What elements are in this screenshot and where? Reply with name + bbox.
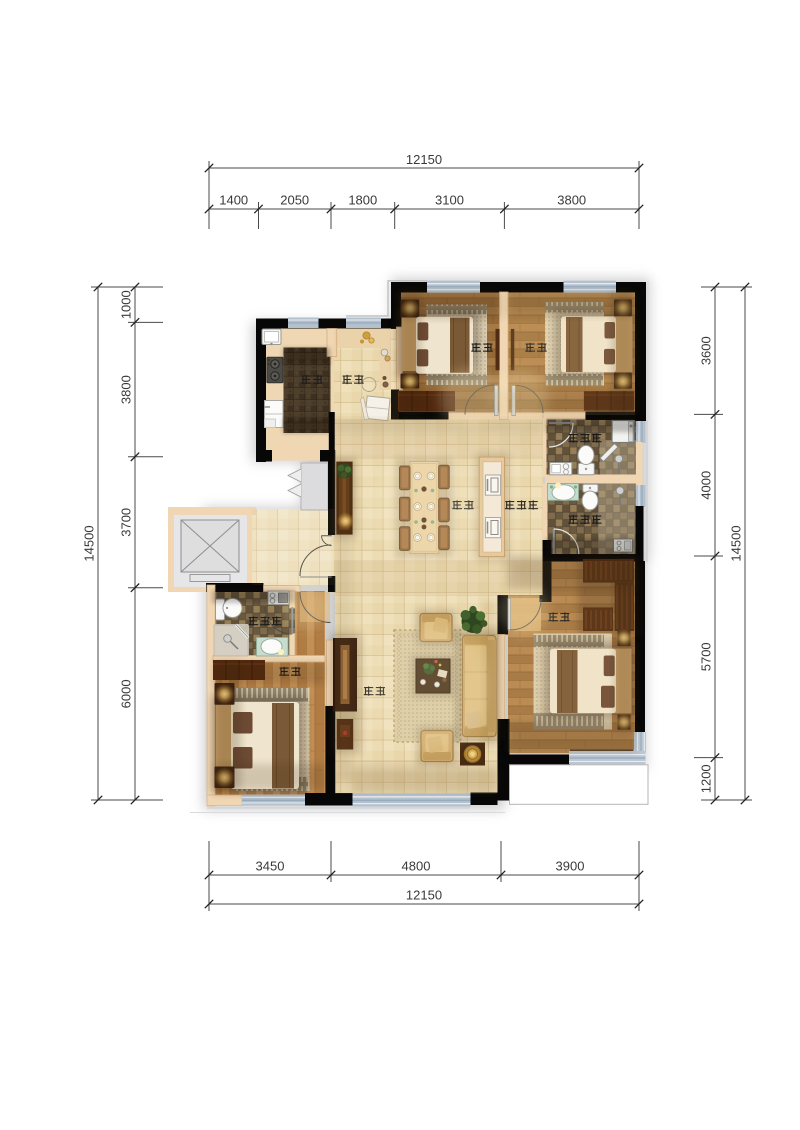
svg-text:3700: 3700 [119,508,134,537]
svg-text:3600: 3600 [699,336,714,365]
svg-text:1000: 1000 [119,290,134,319]
svg-text:3450: 3450 [256,859,285,874]
svg-text:14500: 14500 [82,525,97,561]
svg-text:12150: 12150 [406,888,442,903]
svg-text:3900: 3900 [556,859,585,874]
svg-text:4000: 4000 [699,471,714,500]
svg-text:3800: 3800 [557,193,586,208]
svg-text:12150: 12150 [406,152,442,167]
svg-text:4800: 4800 [402,859,431,874]
svg-text:14500: 14500 [729,525,744,561]
svg-text:6000: 6000 [119,679,134,708]
svg-text:3800: 3800 [119,375,134,404]
svg-text:1800: 1800 [348,193,377,208]
svg-text:1400: 1400 [219,193,248,208]
svg-text:2050: 2050 [280,193,309,208]
svg-text:1200: 1200 [699,764,714,793]
svg-text:5700: 5700 [699,642,714,671]
svg-text:3100: 3100 [435,193,464,208]
